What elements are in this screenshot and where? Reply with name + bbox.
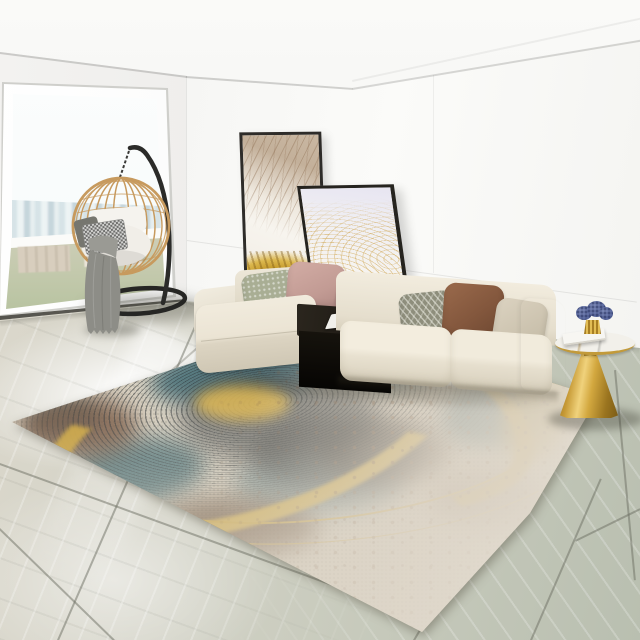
hydrangea-flowers bbox=[599, 307, 613, 320]
flower-vase bbox=[584, 320, 601, 334]
chair-chain bbox=[119, 151, 129, 180]
chair-blanket bbox=[85, 236, 121, 335]
living-room-scene bbox=[0, 0, 640, 640]
